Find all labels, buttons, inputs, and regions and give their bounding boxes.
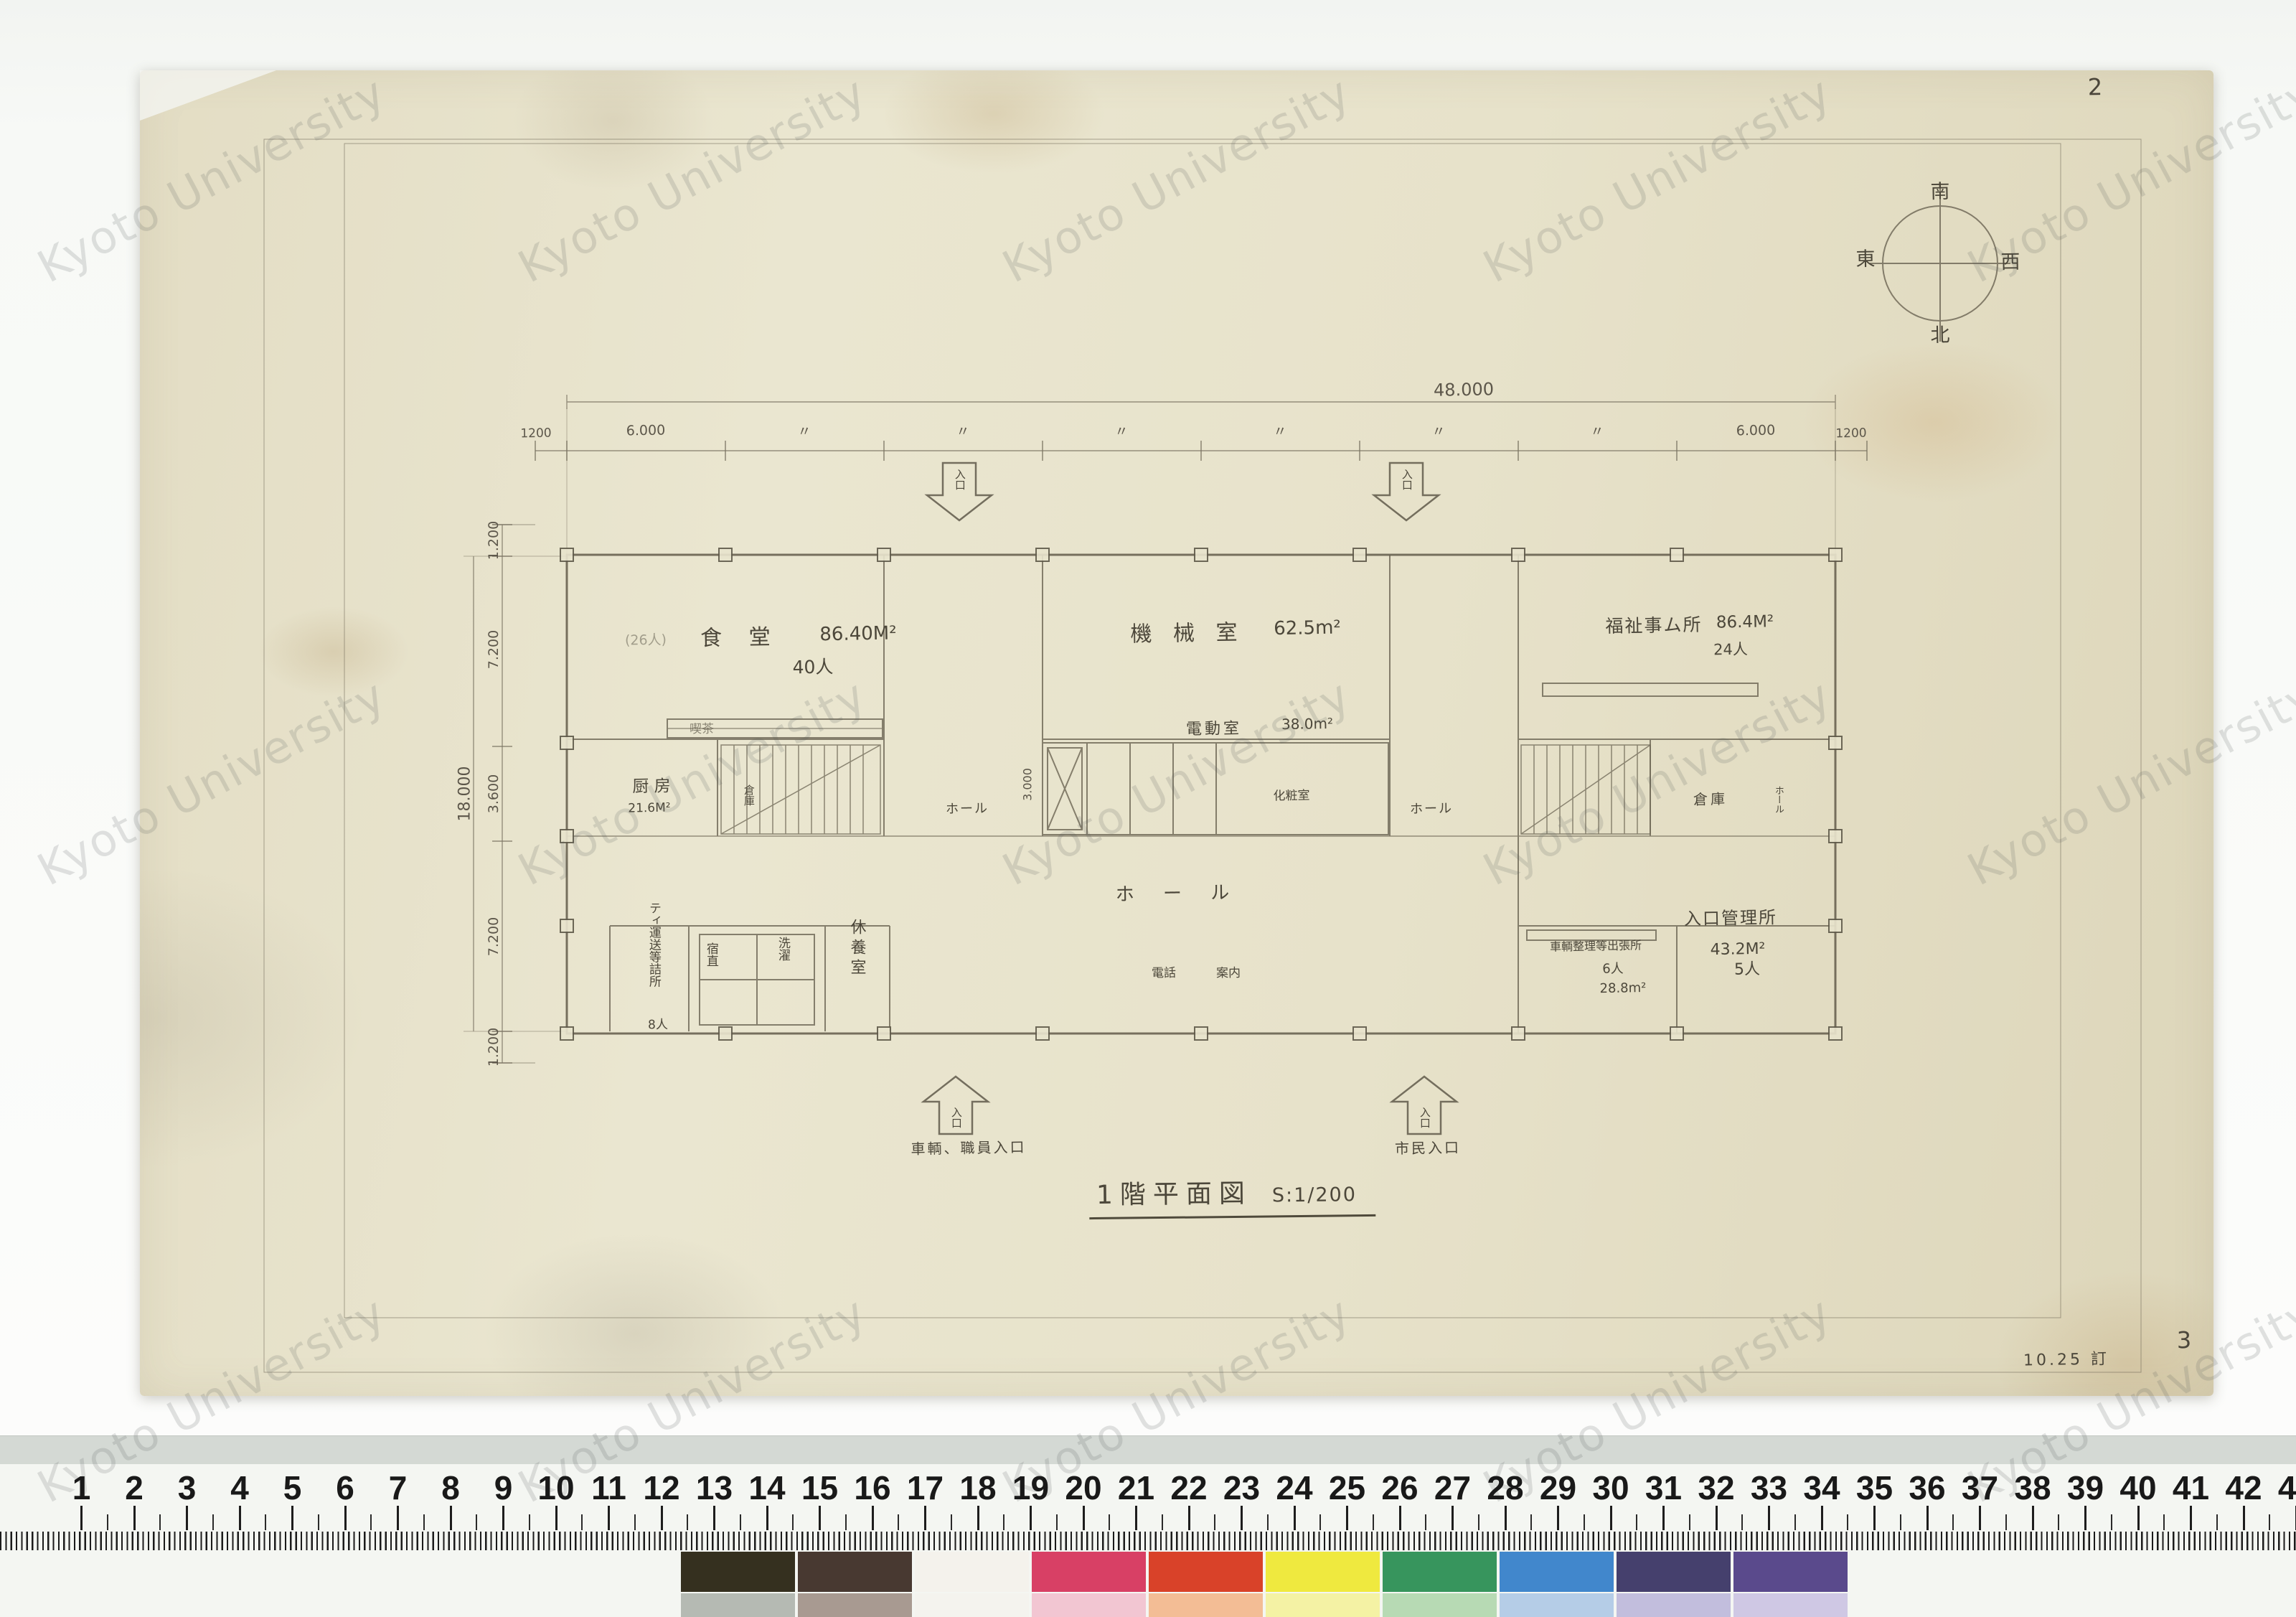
room-area-kitchen: 21.6M² [628,802,671,816]
ruler-half-tick [159,1514,161,1530]
ruler-half-tick [951,1514,952,1530]
room-capacity-dispatch: 6人 [1602,962,1624,976]
room-capacity-entrance-admin: 5人 [1734,961,1760,978]
ruler-number: 36 [1909,1468,1945,1507]
scanned-drawing-sheet: 南 北 東 西 2 3 10.25 訂 48.000 18.000 3.000 … [0,0,2296,1617]
ruler-tick [661,1506,663,1530]
color-patch [1032,1593,1146,1617]
title-scale: S:1/200 [1272,1184,1357,1206]
dim-label-top: 〃 [797,421,811,440]
ruler-half-tick [318,1514,319,1530]
dim-label-top: 1200 [1835,426,1867,441]
ruler-half-tick [2216,1514,2218,1530]
ruler-number: 12 [643,1468,679,1507]
ruler-half-tick [476,1514,477,1530]
dim-label-left: 3.600 [486,774,502,813]
ruler-tick [2190,1506,2192,1530]
room-label-cafe: 喫茶 [690,723,714,736]
sheet-number-top: 2 [2088,75,2103,100]
ruler-half-tick [1056,1514,1058,1530]
drawing-title: 1階平面図S:1/200 [1089,1171,1376,1219]
ruler-half-tick [1900,1514,1901,1530]
ruler-number: 16 [854,1468,890,1507]
color-patch [1617,1593,1731,1617]
color-patch [1032,1552,1146,1592]
ruler-number: 38 [2014,1468,2051,1507]
ruler-tick [1662,1506,1665,1530]
color-patch [1266,1593,1380,1617]
stair-right [1521,745,1650,834]
ruler-number: 4 [230,1468,249,1507]
ruler-half-tick [1162,1514,1163,1530]
ruler-half-tick [845,1514,847,1530]
dim-label-top: 1200 [520,426,552,441]
ruler-number: 43 [2278,1468,2296,1507]
dim-label-left: 1.200 [486,521,502,560]
ruler-number: 37 [1962,1468,1998,1507]
ruler-number: 24 [1276,1468,1312,1507]
room-label-powder: 化粧室 [1273,790,1309,804]
title-text: 1階平面図 [1096,1179,1252,1210]
compass-label-west: 西 [2000,253,2020,273]
ruler-half-tick [634,1514,636,1530]
ruler-number: 28 [1487,1468,1523,1507]
ruler-number: 42 [2225,1468,2262,1507]
dim-label-top: 6.000 [1736,423,1776,439]
room-area-dining: 86.40M² [819,624,897,645]
ruler-half-tick [2005,1514,2007,1530]
color-patch [1149,1552,1263,1592]
entrance-caption-staff: 車輌、職員入口 [911,1140,1026,1157]
room-label-info: 案内 [1216,967,1241,980]
ruler-number: 39 [2067,1468,2104,1507]
dim-label-left: 7.200 [486,917,502,956]
color-patch [798,1593,912,1617]
ruler-half-tick [370,1514,372,1530]
room-area-entrance-admin: 43.2M² [1710,941,1765,958]
ruler-tick [291,1506,293,1530]
ruler-tick [1768,1506,1770,1530]
room-label-night-duty: 宿直 [704,942,717,967]
ruler-number: 40 [2119,1468,2156,1507]
room-capacity-crew: 8人 [648,1019,668,1032]
ruler-tick [1926,1506,1929,1530]
ruler-tick [1873,1506,1876,1530]
ruler-number: 13 [696,1468,733,1507]
ruler-tick [502,1506,504,1530]
ruler-number: 5 [283,1468,302,1507]
ruler-number: 21 [1118,1468,1154,1507]
ruler-tick [1294,1506,1296,1530]
dim-hall-depth: 3.000 [1021,768,1035,801]
room-label-entrance-admin: 入口管理所 [1684,909,1777,928]
room-label-hall-right: ホール [1410,802,1453,817]
ruler-half-tick [687,1514,688,1530]
ruler-number: 35 [1856,1468,1893,1507]
ruler-tick [1979,1506,1981,1530]
ruler-number: 10 [537,1468,574,1507]
ruler-number: 19 [1012,1468,1049,1507]
ruler-number: 41 [2173,1468,2209,1507]
ruler-tick [2084,1506,2086,1530]
ruler-number: 20 [1065,1468,1101,1507]
ruler-half-tick [792,1514,794,1530]
ruler-number: 17 [907,1468,944,1507]
ruler-tick [1821,1506,1823,1530]
color-patch [915,1552,1029,1592]
ruler-number: 29 [1540,1468,1576,1507]
ruler-tick [133,1506,136,1530]
dim-overall-width: 48.000 [1434,379,1494,400]
color-patch [1383,1552,1497,1592]
dim-label-left: 7.200 [486,630,502,669]
color-patch [1733,1593,1848,1617]
ruler-number: 6 [336,1468,354,1507]
ruler-number: 25 [1329,1468,1365,1507]
room-area-machine: 62.5m² [1274,619,1341,639]
room-capacity-welfare: 24人 [1713,642,1748,658]
color-patch [1266,1552,1380,1592]
ruler-number: 1 [72,1468,91,1507]
ruler-half-tick [1741,1514,1743,1530]
ruler-half-tick [265,1514,266,1530]
ruler-half-tick [898,1514,899,1530]
ruler-tick [344,1506,347,1530]
ruler-tick [239,1506,241,1530]
color-patch [1500,1552,1614,1592]
compass-label-east: 東 [1855,250,1875,271]
room-label-rest: 休養室 [848,919,865,979]
ruler-number: 8 [441,1468,460,1507]
ruler-number: 3 [178,1468,197,1507]
ruler-number: 18 [959,1468,996,1507]
ruler-tick [555,1506,557,1530]
ruler-half-tick [1584,1514,1585,1530]
ruler-tick [1610,1506,1612,1530]
ruler-half-tick [1425,1514,1426,1530]
dim-label-top: 〃 [1431,421,1445,440]
ruler-number: 22 [1170,1468,1207,1507]
ruler-tick [80,1506,83,1530]
ruler-millimeter-ticks [0,1532,2296,1550]
compass-rose-icon [1870,185,2010,342]
ruler-number: 34 [1803,1468,1840,1507]
dim-label-top: 〃 [1273,421,1286,440]
ruler-tick [1557,1506,1559,1530]
sheet-number-bottom: 3 [2177,1328,2192,1353]
revision-note: 10.25 訂 [2023,1351,2109,1369]
ruler-number: 26 [1381,1468,1418,1507]
ruler-half-tick [1319,1514,1321,1530]
ruler-tick [1135,1506,1137,1530]
ruler-tick [1030,1506,1032,1530]
color-patch [1383,1593,1497,1617]
room-label-dining-note: (26人) [625,634,667,649]
dim-label-top: 6.000 [626,423,666,439]
ruler-half-tick [1267,1514,1269,1530]
entrance-caption-citizen: 市民入口 [1395,1140,1461,1157]
ruler-half-tick [1530,1514,1532,1530]
dim-label-top: 〃 [956,421,969,440]
ruler-number: 9 [494,1468,513,1507]
ruler-half-tick [2163,1514,2165,1530]
entrance-arrow-text: 入口 [954,469,965,490]
ruler-tick [977,1506,979,1530]
room-label-dispatch: 車輌整理等出張所 [1550,939,1642,953]
ruler-tick [1505,1506,1507,1530]
entrance-arrow-text: 入口 [1401,469,1412,490]
room-label-dining: 食 堂 [700,626,781,650]
ruler-tick [1188,1506,1190,1530]
room-area-electric: 38.0m² [1281,716,1333,732]
dim-label-top: 〃 [1590,421,1604,440]
ruler-number: 33 [1751,1468,1787,1507]
ruler-number: 15 [801,1468,838,1507]
room-label-laundry: 洗濯 [776,937,789,961]
ruler-number: 11 [591,1468,626,1507]
ruler-number: 31 [1645,1468,1682,1507]
ruler-tick [1346,1506,1348,1530]
dim-label-top: 〃 [1114,421,1128,440]
compass-label-north: 北 [1930,326,1949,347]
ruler-tick [608,1506,610,1530]
room-label-welfare: 福祉事ム所 [1605,616,1702,637]
ruler-tick [397,1506,399,1530]
room-label-phone: 電話 [1152,967,1176,980]
ruler-half-tick [1373,1514,1374,1530]
ruler-half-tick [107,1514,108,1530]
ruler-half-tick [1214,1514,1215,1530]
ruler-half-tick [212,1514,214,1530]
ruler-half-tick [1478,1514,1479,1530]
dim-overall-height: 18.000 [456,767,474,822]
color-patch [1500,1593,1614,1617]
ruler-half-tick [2111,1514,2112,1530]
ruler-tick [2243,1506,2245,1530]
ruler-half-tick [1794,1514,1796,1530]
ruler-half-tick [1847,1514,1848,1530]
plan-drawing [0,0,2296,1617]
room-capacity-dining: 40人 [792,657,833,677]
ruler-half-tick [1003,1514,1004,1530]
ruler-tick [872,1506,874,1530]
ruler-tick [2032,1506,2034,1530]
ruler-number: 23 [1223,1468,1260,1507]
entrance-arrow-text: 入口 [1418,1107,1430,1128]
ruler-half-tick [1636,1514,1637,1530]
ruler-half-tick [2269,1514,2270,1530]
ruler-tick [819,1506,821,1530]
room-label-crew: ティ運送等詰所 [646,902,659,988]
ruler-half-tick [1109,1514,1110,1530]
color-patch [915,1593,1029,1617]
ruler-number: 30 [1592,1468,1629,1507]
ruler-half-tick [581,1514,583,1530]
room-label-hall-left: ホール [946,802,989,817]
ruler-half-tick [2058,1514,2059,1530]
compass-label-south: 南 [1930,182,1949,203]
ruler-tick [186,1506,188,1530]
room-label-hall-main: ホ ー ル [1116,884,1241,905]
ruler-tick [924,1506,926,1530]
color-patch [1149,1593,1263,1617]
ruler-half-tick [1952,1514,1954,1530]
ruler-tick [1083,1506,1085,1530]
dim-label-left: 1.200 [486,1028,502,1067]
color-patch [681,1552,795,1592]
room-label-kitchen: 厨 房 [632,777,671,795]
ruler-number: 14 [748,1468,785,1507]
room-label-machine: 機 械 室 [1130,622,1245,646]
room-label-storage-left: 倉庫 [743,784,754,806]
ruler-half-tick [740,1514,741,1530]
ruler-tick [713,1506,715,1530]
color-patch [681,1593,795,1617]
color-patch [1733,1552,1848,1592]
dimension-ticks [492,441,1867,1063]
ruler-half-tick [529,1514,530,1530]
ruler-half-tick [423,1514,425,1530]
ruler-half-tick [1689,1514,1690,1530]
ruler-tick [450,1506,452,1530]
ruler-tick [1241,1506,1243,1530]
ruler-tick [2137,1506,2140,1530]
ruler-tick [1452,1506,1454,1530]
color-patch [1617,1552,1731,1592]
ruler-tick [1399,1506,1401,1530]
ruler-tick [1716,1506,1718,1530]
ruler-top-band [0,1435,2296,1465]
entrance-arrow-text: 入口 [950,1107,961,1128]
room-label-hall-small-right: ホール [1773,786,1783,814]
room-label-storage-right: 倉庫 [1693,792,1728,807]
ruler-number: 27 [1434,1468,1471,1507]
color-patch [798,1552,912,1592]
room-label-electric: 電動室 [1186,721,1242,738]
ruler-number: 7 [389,1468,408,1507]
ruler-number: 2 [125,1468,143,1507]
room-area-dispatch: 28.8m² [1599,982,1646,996]
ruler-number: 32 [1698,1468,1734,1507]
ruler-tick [766,1506,768,1530]
room-area-welfare: 86.4M² [1716,613,1774,632]
